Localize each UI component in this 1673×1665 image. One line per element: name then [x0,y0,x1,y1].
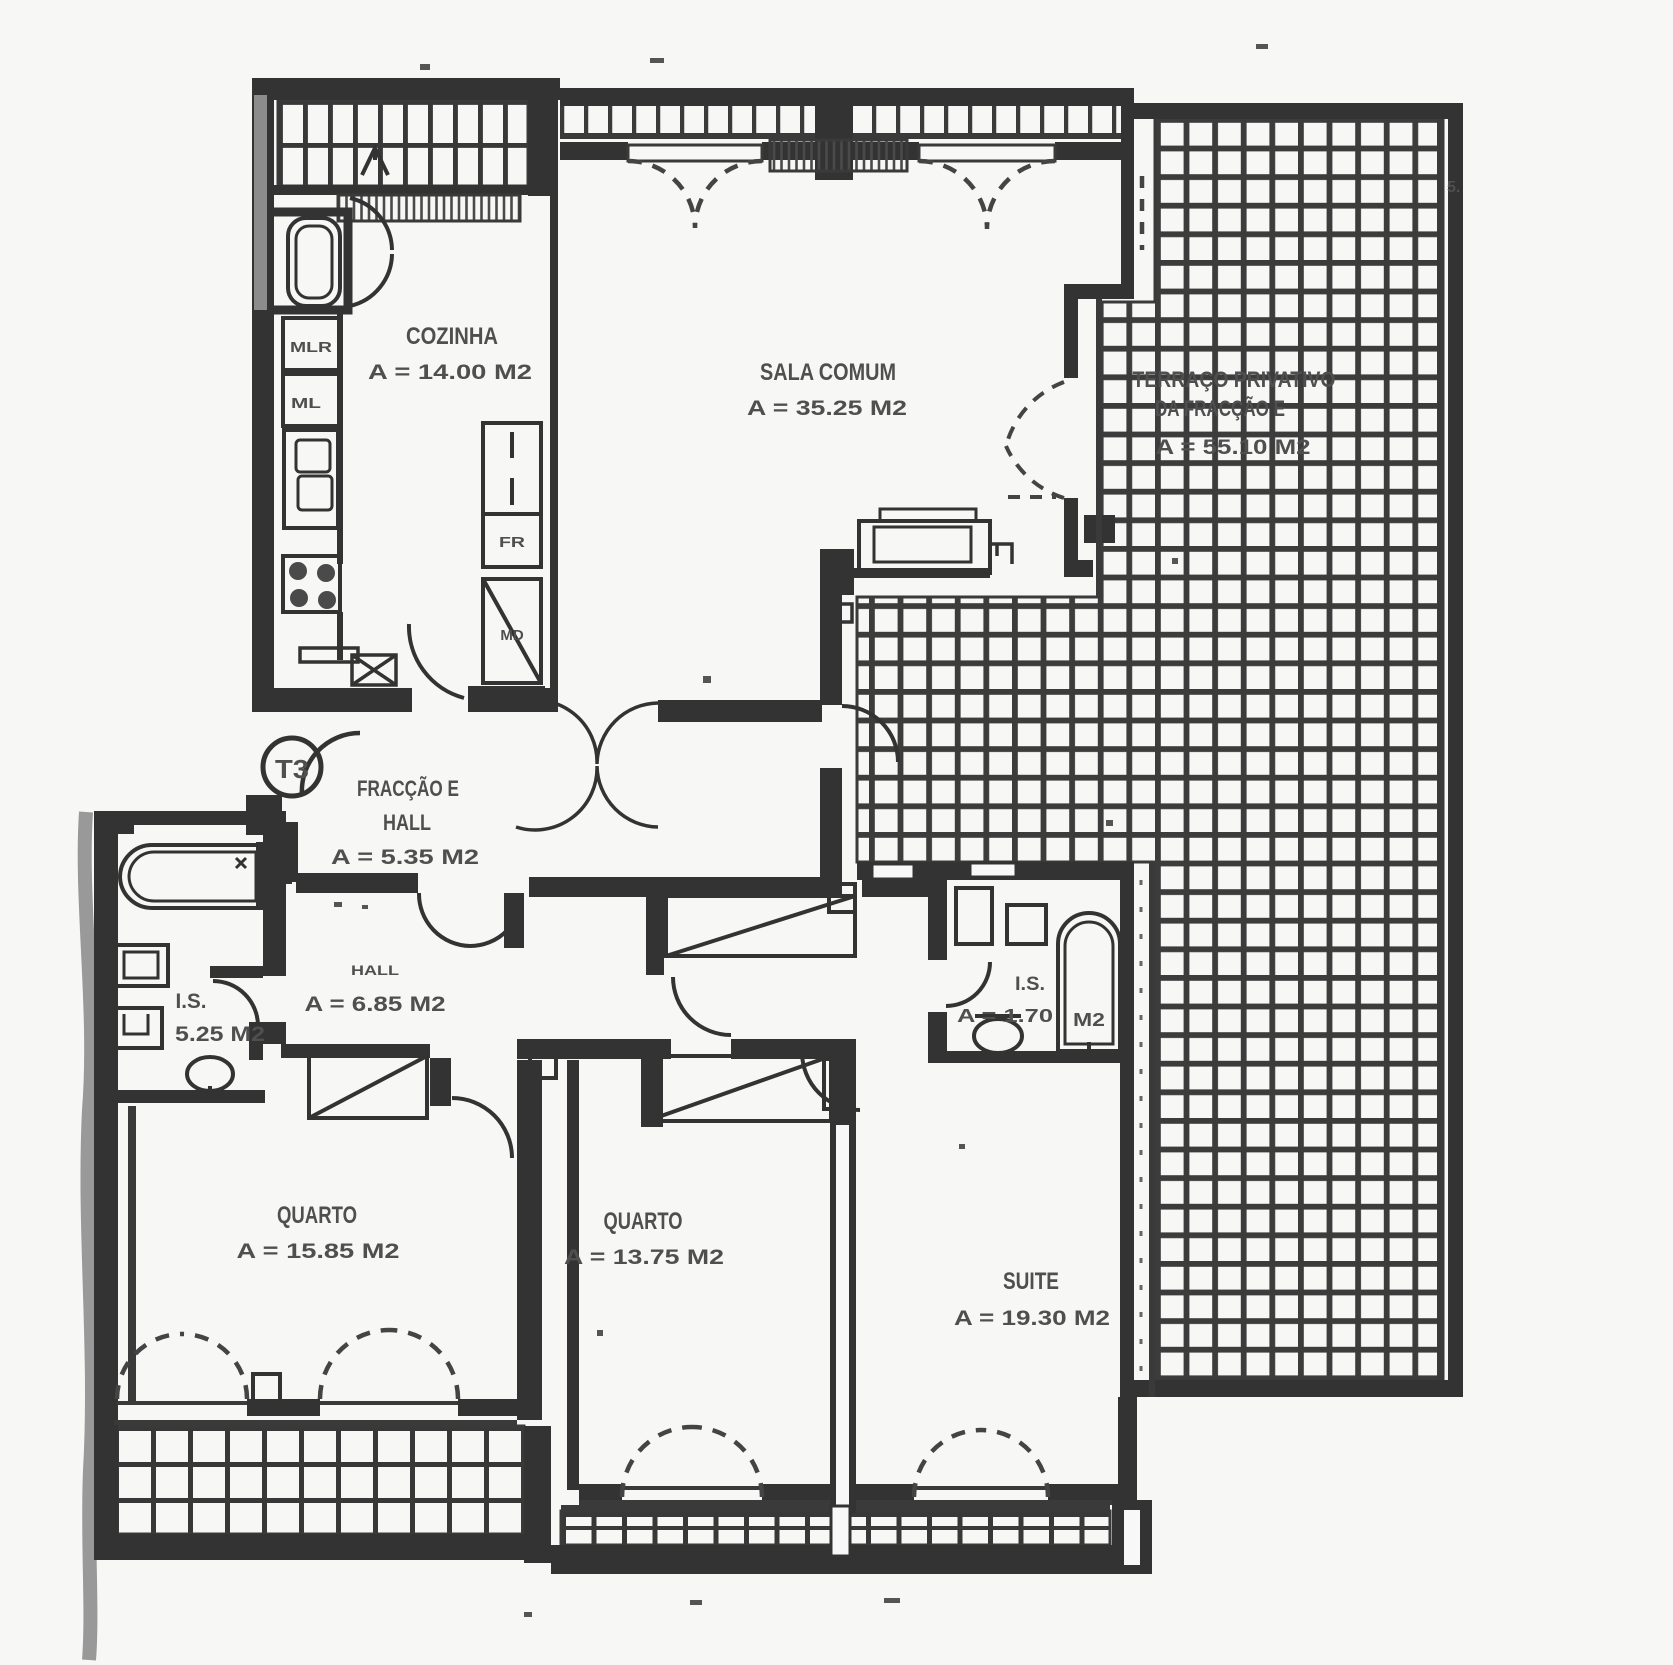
svg-text:A = 19.30 M2: A = 19.30 M2 [954,1307,1110,1330]
svg-text:A = 55.10 M2: A = 55.10 M2 [1156,436,1311,459]
svg-text:A = 14.00 M2: A = 14.00 M2 [368,361,532,384]
svg-text:A = 13.75 M2: A = 13.75 M2 [564,1246,724,1269]
svg-text:A = 35.25 M2: A = 35.25 M2 [747,397,907,420]
svg-text:I.S.: I.S. [176,990,207,1013]
svg-text:QUARTO: QUARTO [604,1208,683,1235]
svg-text:FR: FR [499,534,525,551]
svg-text:A = 1.70: A = 1.70 [957,1006,1053,1026]
svg-text:SALA COMUM: SALA COMUM [760,359,896,386]
svg-text:A = 5.35 M2: A = 5.35 M2 [331,846,479,869]
svg-text:QUARTO: QUARTO [277,1202,357,1229]
svg-text:A = 15.85 M2: A = 15.85 M2 [237,1240,400,1263]
svg-text:I.S.: I.S. [1015,974,1045,995]
svg-text:T3: T3 [275,754,309,784]
svg-text:HALL: HALL [383,810,431,835]
svg-text:TERRAÇO PRIVATIVO: TERRAÇO PRIVATIVO [1133,367,1336,392]
svg-text:A = 6.85 M2: A = 6.85 M2 [305,993,446,1016]
svg-text:HALL: HALL [351,962,400,978]
svg-text:DA FRACÇÃO E: DA FRACÇÃO E [1155,396,1285,421]
svg-text:5.: 5. [1447,179,1460,196]
svg-text:FRACÇÃO E: FRACÇÃO E [357,776,459,801]
svg-text:ML: ML [291,395,321,412]
svg-text:M2: M2 [1073,1010,1105,1030]
svg-text:MLR: MLR [290,339,332,356]
svg-text:SUITE: SUITE [1003,1268,1059,1295]
svg-text:COZINHA: COZINHA [406,323,498,350]
svg-text:MD: MD [500,627,523,644]
svg-text:5.25 M2: 5.25 M2 [175,1023,265,1046]
